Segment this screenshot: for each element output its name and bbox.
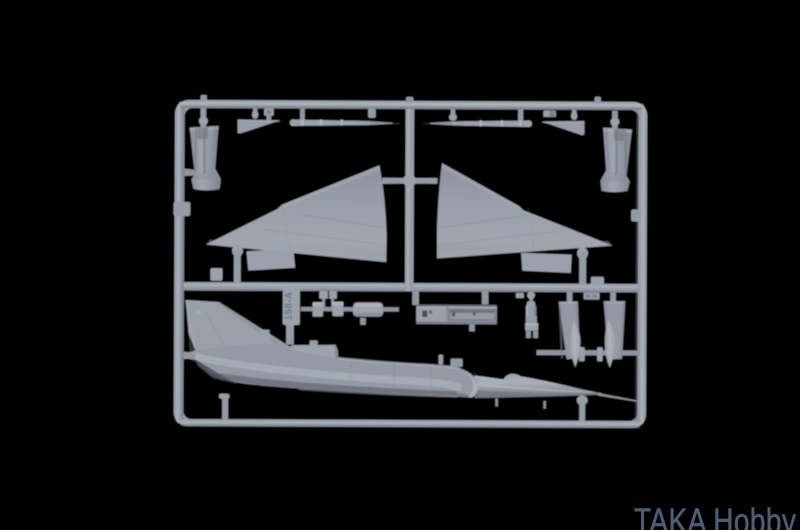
svg-text:158-A: 158-A xyxy=(284,292,295,321)
